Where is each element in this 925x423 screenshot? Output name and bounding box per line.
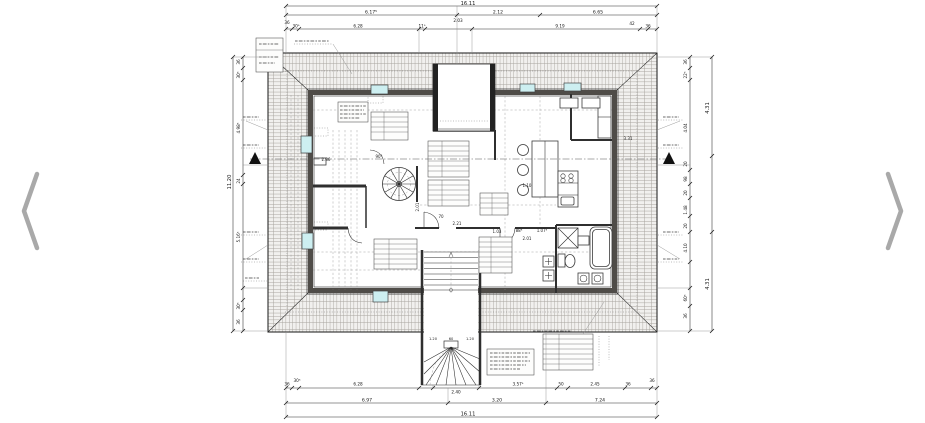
spiral-stair	[383, 168, 416, 201]
dim-label: 6.17⁵	[365, 10, 377, 16]
dim-label: 42	[629, 21, 635, 26]
dim-label: 36	[236, 59, 241, 65]
dim-label: 7.24	[595, 398, 605, 404]
dim-label: 30⁵	[236, 71, 241, 78]
dim-label: 5.16⁵	[236, 231, 241, 242]
stair-width-label: 1.20	[429, 337, 438, 341]
chevron-right-icon	[873, 168, 913, 254]
dim-label: 6.65	[593, 10, 603, 16]
dimension-chain-right: 36 22⁵ 4.04 20 98 20 1.48 20 4.10 60⁵ 36…	[657, 55, 714, 333]
room-label: 90°	[375, 154, 382, 159]
dim-label: 30⁵	[292, 24, 299, 29]
dim-label: 2.45	[590, 382, 600, 387]
dim-label: 2.03	[453, 18, 463, 23]
dim-label: 6.97	[362, 398, 372, 404]
dim-label: 36	[645, 24, 651, 29]
roof-recess	[433, 64, 495, 132]
image-viewer: 1.20 60 1.20	[0, 0, 925, 423]
dim-label: 36	[683, 59, 688, 65]
dim-label: 2.12	[493, 10, 503, 16]
stair-width-label: 60	[449, 337, 454, 341]
dim-label: 20	[683, 223, 688, 229]
dim-label: 9.19	[555, 24, 565, 29]
dim-label: 98	[683, 176, 688, 182]
dim-label: 16.11	[461, 412, 476, 418]
dim-label: 30⁵	[236, 302, 241, 309]
dim-label: 4.31	[705, 102, 711, 114]
dim-label: 4.31	[705, 278, 711, 290]
dim-label: 36	[649, 378, 655, 383]
dim-label: 20	[683, 190, 688, 196]
room-label: 2.01	[415, 202, 420, 211]
floor-plan-drawing: 1.20 60 1.20	[0, 0, 925, 423]
next-button[interactable]	[873, 168, 913, 254]
room-label: 70	[438, 214, 444, 219]
room-label: 2.86	[322, 157, 331, 162]
dim-label: 36	[625, 382, 631, 387]
dim-label: 16.11	[461, 1, 476, 7]
section-marker-right	[663, 152, 675, 164]
room-label: 1.07⁵	[537, 228, 548, 233]
room-label: 3.31	[624, 136, 633, 141]
dim-label: 60⁵	[683, 294, 688, 301]
dimension-chain-left: 36 30⁵ 4.98⁵ 24 5.16⁵ 30⁵ 36 11.20	[227, 55, 268, 333]
dim-label: 4.98⁵	[236, 122, 241, 133]
room-label: 88⁵	[516, 228, 523, 233]
dim-label: 50	[558, 382, 564, 387]
room-label: 2.21	[453, 221, 462, 226]
dim-label: 36	[236, 319, 241, 325]
dim-label: 36	[284, 20, 290, 25]
dim-label: 22⁵	[683, 71, 688, 78]
room-label: 2.01	[523, 236, 532, 241]
room-label: 1.10	[523, 183, 532, 188]
main-stair: 1.20 60 1.20	[421, 250, 481, 385]
dim-label: 36	[683, 313, 688, 319]
dim-label: 3.57⁵	[512, 382, 523, 387]
dim-label: 11⁵	[418, 24, 425, 29]
dim-label: 4.10	[683, 243, 688, 253]
room-label: 1.03	[493, 229, 502, 234]
dim-label: 4.04	[683, 123, 688, 133]
dim-label: 11.20	[227, 175, 233, 190]
dim-label: 6.28	[353, 24, 363, 29]
dim-label: 20	[683, 161, 688, 167]
chevron-left-icon	[12, 168, 52, 254]
dim-label: 6.28	[353, 382, 363, 387]
previous-button[interactable]	[12, 168, 52, 254]
dim-label: 3.20	[492, 398, 502, 404]
dim-label: 24	[236, 178, 241, 184]
dim-label: 30⁵	[293, 378, 300, 383]
section-marker-left	[249, 152, 261, 164]
dim-label: 2.40	[451, 390, 461, 395]
dim-label: 36	[284, 382, 290, 387]
dim-label: 1.48	[683, 205, 688, 215]
stair-width-label: 1.20	[466, 337, 475, 341]
